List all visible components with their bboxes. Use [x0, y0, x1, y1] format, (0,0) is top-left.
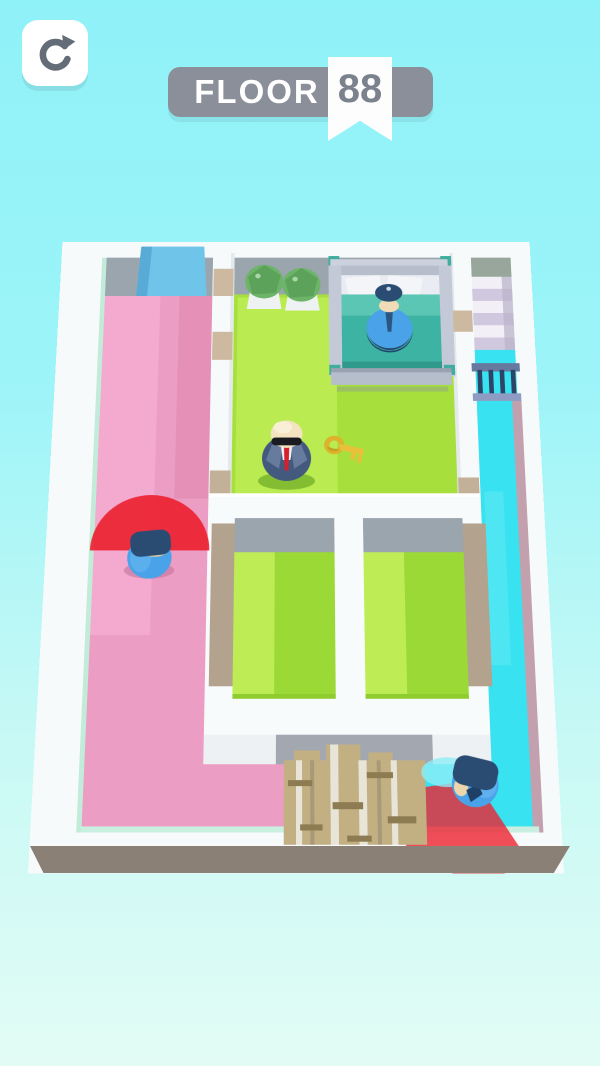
game-board[interactable] [46, 214, 545, 858]
bed [328, 256, 455, 392]
game-screen: { "hud": { "floor_banner": { "label": "F… [0, 0, 600, 1066]
restart-icon [33, 31, 77, 75]
board-base-skirt [30, 846, 570, 873]
floor-number-ribbon: 88 [328, 57, 392, 141]
bush [245, 265, 283, 309]
tan-ledge-left [209, 523, 235, 686]
floor-number: 88 [328, 63, 392, 115]
stairs [471, 258, 515, 350]
bush [282, 268, 320, 311]
floor-banner-label: FLOOR [182, 67, 332, 117]
green-pit-room-right [363, 518, 469, 699]
green-pit-room-left [232, 518, 335, 699]
floor-banner: FLOOR 88 [168, 67, 433, 117]
restart-button[interactable] [22, 20, 88, 86]
blue-ramp [136, 247, 208, 300]
